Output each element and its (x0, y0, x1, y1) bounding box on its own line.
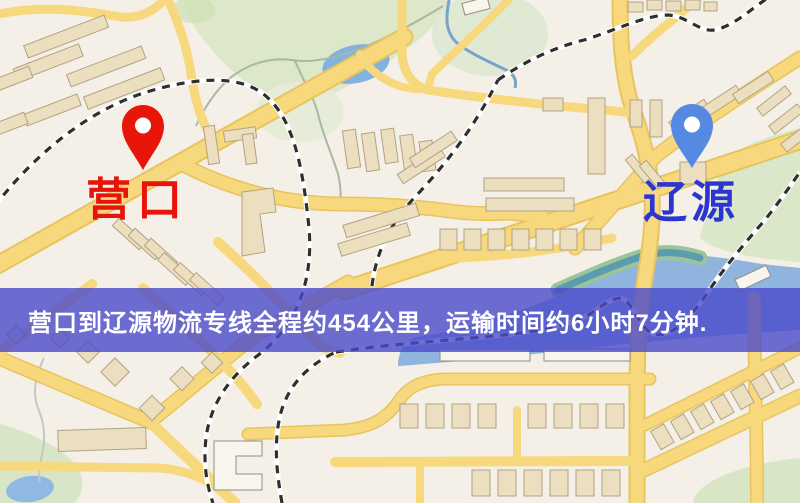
logistics-route-map: 营口 辽源 营口到辽源物流专线全程约454公里，运输时间约6小时7分钟. (0, 0, 800, 503)
route-banner-text: 营口到辽源物流专线全程约454公里，运输时间约6小时7分钟. (28, 303, 707, 338)
origin-label: 营口 (86, 177, 188, 222)
destination-pin-hole (684, 117, 700, 133)
route-banner: 营口到辽源物流专线全程约454公里，运输时间约6小时7分钟. (0, 288, 800, 352)
building-row-center (440, 229, 601, 250)
origin-pin-hole (135, 118, 151, 134)
map-canvas[interactable] (0, 0, 800, 503)
building-long-bottomleft (58, 427, 147, 451)
destination-label: 辽源 (643, 181, 739, 225)
